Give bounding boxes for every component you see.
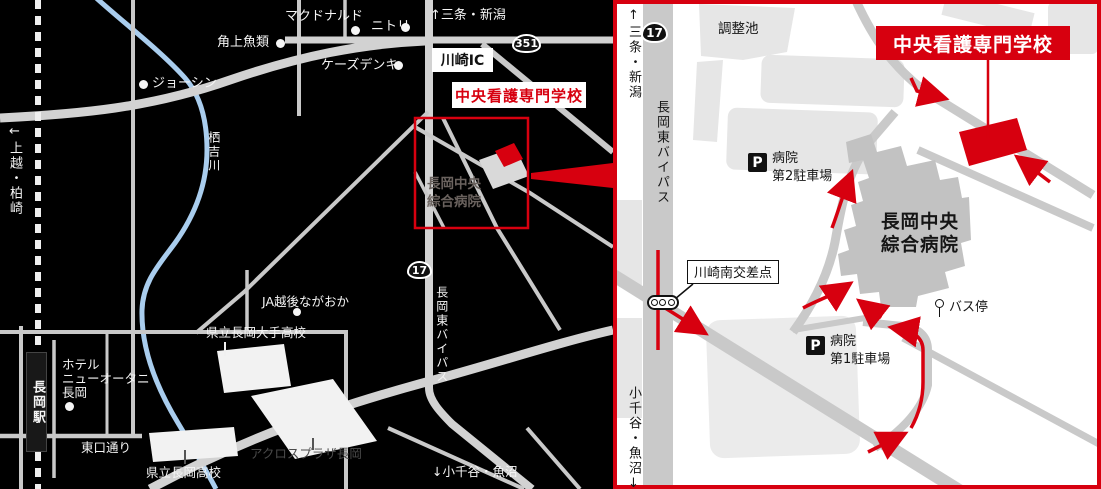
hospital-label-line1: 長岡中央: [881, 212, 959, 233]
nagaoka-station: 長岡駅: [26, 352, 47, 452]
hotel-label-line3: 長岡: [62, 386, 87, 400]
poi-dot-icon: [293, 308, 301, 316]
school-callout-label: 中央看護専門学校: [452, 82, 586, 108]
parking-icon: P: [806, 336, 825, 355]
route-badge-351: 351: [512, 34, 541, 53]
poi-dot-icon: [401, 23, 410, 32]
overview-map-graphics: [0, 0, 613, 489]
overview-map: マクドナルド ニトリ ↑三条・新潟 351 川崎IC 角上魚類 ケーズデンキ ジ…: [0, 0, 613, 489]
bypass-label: 長岡東バイパス: [434, 286, 448, 384]
access-map: マクドナルド ニトリ ↑三条・新潟 351 川崎IC 角上魚類 ケーズデンキ ジ…: [0, 0, 1101, 489]
signal-icon: [647, 295, 679, 310]
parking-icon: P: [748, 153, 767, 172]
school-label-nagaoka-hs: 県立長岡高校: [146, 466, 221, 480]
street-label-higashiguchi: 東口通り: [81, 441, 131, 455]
detail-map-graphics: [613, 0, 1101, 489]
parking2-label-line2: 第2駐車場: [772, 168, 832, 185]
hospital-label-line2: 綜合病院: [427, 195, 481, 211]
bus-stop-icon: [935, 299, 945, 318]
poi-dot-icon: [276, 39, 285, 48]
detail-map: ↑三条・新潟 17 長岡東バイパス 調整池 中央看護専門学校 P 病院 第2駐車…: [613, 0, 1101, 489]
parking2-label-line1: 病院: [772, 150, 798, 167]
poi-dot-icon: [65, 402, 74, 411]
direction-label-joetsu: ←上越・柏崎: [6, 124, 21, 216]
poi-label-mcdonalds: マクドナルド: [285, 10, 363, 25]
kawasaki-ic-label: 川崎IC: [432, 48, 493, 72]
bypass-label: 長岡東バイパス: [653, 100, 668, 205]
bus-stop-label: バス停: [949, 301, 988, 316]
poi-dot-icon: [351, 26, 360, 35]
direction-label-sanjo: ↑三条・新潟: [625, 8, 640, 100]
school-title-label: 中央看護専門学校: [876, 26, 1070, 60]
poi-label-across: アクロスプラザ長岡: [250, 447, 362, 461]
direction-label-sanjo: ↑三条・新潟: [430, 9, 506, 24]
poi-dot-icon: [394, 61, 403, 70]
parking1-label-line1: 病院: [830, 333, 856, 350]
hospital-label-line1: 長岡中央: [427, 177, 481, 193]
pond-label: 調整池: [718, 22, 759, 38]
school-label-otemae: 県立長岡大手高校: [206, 326, 306, 340]
route-badge-17: 17: [407, 261, 432, 279]
parking1-label-line2: 第1駐車場: [830, 351, 890, 368]
poi-label-kakujo: 角上魚類: [217, 36, 269, 51]
intersection-label: 川崎南交差点: [687, 260, 779, 284]
hospital-label-line2: 綜合病院: [881, 235, 959, 256]
poi-dot-icon: [139, 80, 148, 89]
river-label: 栖吉川: [206, 131, 220, 173]
poi-label-ksdenki: ケーズデンキ: [321, 59, 398, 74]
station-label: 長岡駅: [29, 380, 44, 425]
route-badge-17: 17: [641, 22, 668, 43]
direction-label-ojiya: ↓小千谷・魚沼: [432, 465, 517, 479]
poi-label-joshin: ジョーシン: [152, 77, 217, 92]
direction-label-ojiya: 小千谷・魚沼↓: [625, 386, 640, 489]
poi-label-ja: JA越後ながおか: [262, 295, 349, 309]
